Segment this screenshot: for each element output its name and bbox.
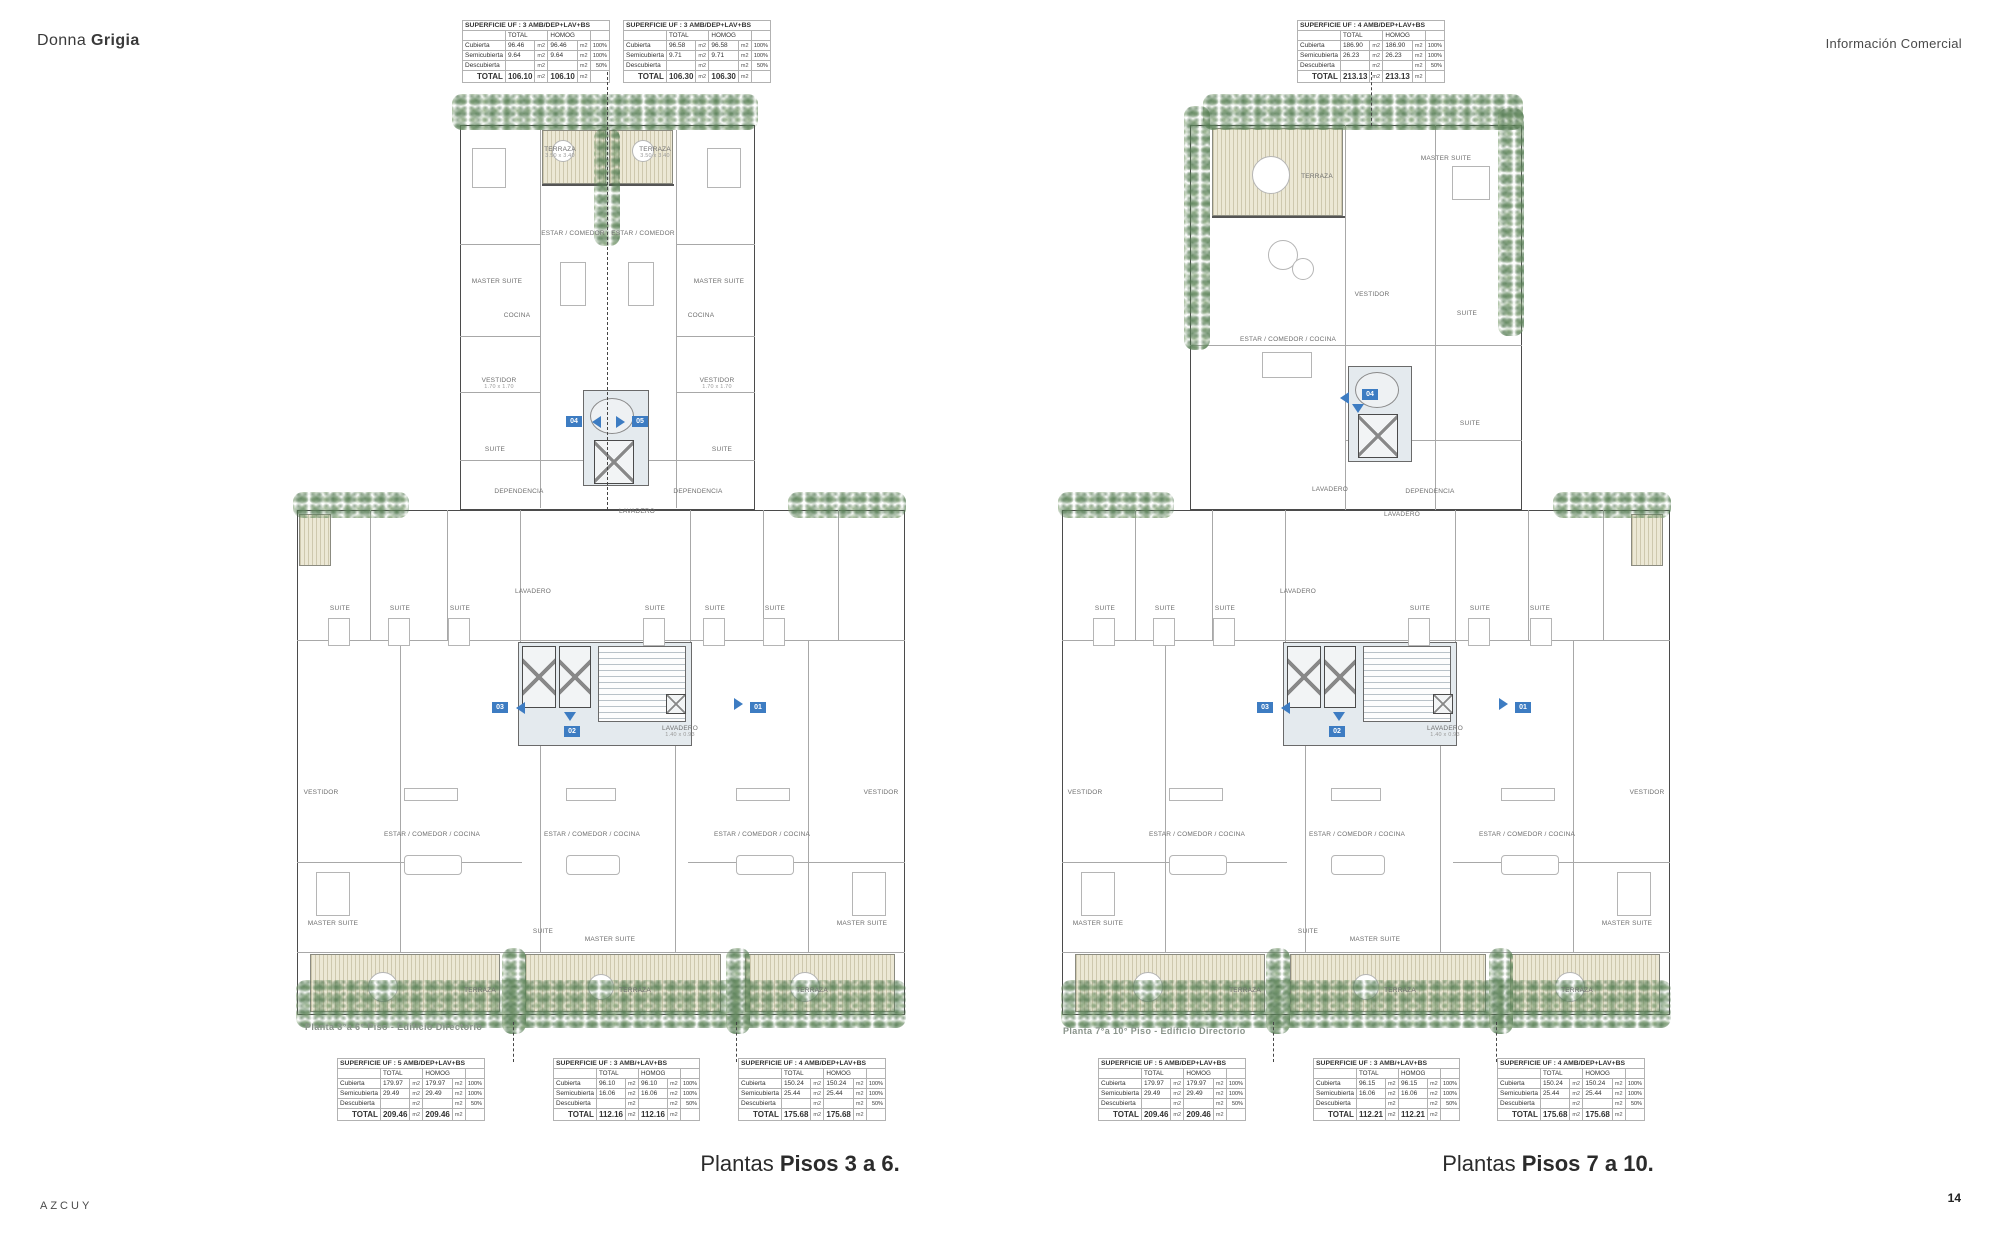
wall-line [1528,510,1529,640]
total-label: TOTAL [1099,1109,1142,1121]
wall-line [676,130,677,508]
room-label: ESTAR / COMEDOR / COCINA [1309,831,1405,838]
pct-value: 100% [866,1079,885,1089]
pct-value: 100% [866,1089,885,1099]
grand-total-homog: 209.46 [423,1109,452,1121]
furniture-bed [1617,872,1651,916]
axis-dashed-line [513,1022,514,1062]
planting-band [1498,108,1524,336]
wall-line [1135,510,1136,640]
pct-value: 100% [1625,1089,1644,1099]
room-label: SUITE [450,605,470,612]
furniture-kitchen-island [404,788,458,801]
homog-value: 96.10 [638,1079,667,1089]
furniture-bed [707,148,741,188]
room-label: SUITE [330,605,350,612]
row-label: Descubierta [1498,1099,1541,1109]
arrow-down-icon [1352,404,1364,413]
wall-line [1435,345,1436,510]
row-label: Descubierta [739,1099,782,1109]
pct-value: 50% [465,1099,484,1109]
col-header-homog: HOMOG [1383,31,1425,41]
superficie-table-bottom-right-3: SUPERFICIE UF : 4 AMB/DEP+LAV+BSTOTALHOM… [1497,1058,1645,1121]
row-label: Semicubierta [1099,1089,1142,1099]
furniture-bed [763,618,785,646]
total-value: 9.64 [505,51,534,61]
pct-value: 100% [1425,51,1444,61]
planting-band [788,492,906,518]
row-label: Semicubierta [624,51,667,61]
planting-band [1553,492,1671,518]
total-value [666,61,695,71]
homog-value [548,61,577,71]
total-value: 150.24 [781,1079,810,1089]
furniture-kitchen-island [736,788,790,801]
room-label: LAVADERO [619,508,655,515]
pct-value: 100% [590,41,609,51]
furniture-sofa [1501,855,1559,875]
grand-total-homog: 213.13 [1383,71,1412,83]
furniture-dining-table [1262,352,1312,378]
room-label: SUITE [705,605,725,612]
row-label: Semicubierta [739,1089,782,1099]
room-label: MASTER SUITE [1602,920,1652,927]
wall-line [676,244,755,245]
total-label: TOTAL [1298,71,1341,83]
grand-total: 112.16 [596,1109,625,1121]
room-label: TERRAZA [464,987,496,994]
wall-line [540,130,541,508]
pct-value: 50% [590,61,609,71]
col-header-total: TOTAL [596,1069,638,1079]
total-label: TOTAL [1314,1109,1357,1121]
row-label: Descubierta [1099,1099,1142,1109]
header-right-label: Información Comercial [1826,36,1962,51]
homog-value [638,1099,667,1109]
furniture-dining-table [628,262,654,306]
room-label: MASTER SUITE [585,936,635,943]
arrow-right-icon [1499,698,1508,710]
col-header-homog: HOMOG [824,1069,866,1079]
row-label: Semicubierta [1298,51,1341,61]
row-label: Semicubierta [338,1089,381,1099]
superficie-table: SUPERFICIE UF : 5 AMB/DEP+LAV+BSTOTALHOM… [1098,1058,1246,1121]
room-label: LAVADERO [1312,486,1348,493]
furniture-table [1292,258,1314,280]
table-title: SUPERFICIE UF : 4 AMB/DEP+LAV+BS [1498,1059,1645,1069]
room-label: SUITE [1460,420,1480,427]
brand-title: Donna Grigia [37,32,140,50]
planting-band [726,948,750,1034]
total-value: 150.24 [1540,1079,1569,1089]
grand-total: 209.46 [380,1109,409,1121]
room-label: DEPENDENCIA [494,488,543,495]
unit-marker: 02 [1329,726,1345,737]
col-header-total: TOTAL [380,1069,422,1079]
service-shaft [666,694,686,714]
pct-value: 100% [465,1089,484,1099]
total-value: 29.49 [1141,1089,1170,1099]
wall-line [540,745,541,952]
room-label: VESTIDOR [1068,789,1103,796]
wall-line [460,244,540,245]
total-value: 96.46 [505,41,534,51]
homog-value: 96.46 [548,41,577,51]
pct-value: 100% [1441,1089,1460,1099]
room-label: LAVADERO [1280,588,1316,595]
elevator-shaft [522,646,556,708]
homog-value [1383,61,1412,71]
homog-value: 26.23 [1383,51,1412,61]
row-label: Descubierta [1314,1099,1357,1109]
room-label: SUITE [1298,928,1318,935]
furniture-sofa [404,855,462,875]
superficie-table-bottom-left-3: SUPERFICIE UF : 4 AMB/DEP+LAV+BSTOTALHOM… [738,1058,886,1121]
room-label: VESTIDOR [304,789,339,796]
grand-total: 112.21 [1356,1109,1385,1121]
furniture-sofa [1331,855,1385,875]
planting-band [502,948,526,1034]
furniture-kitchen-island [1331,788,1381,801]
room-label: TERRAZA3.50 x 3.40 [639,146,671,159]
homog-value: 186.90 [1383,41,1412,51]
row-label: Cubierta [739,1079,782,1089]
total-value [781,1099,810,1109]
table-title: SUPERFICIE UF : 3 AMB/DEP+LAV+BS [624,21,771,31]
room-label: ESTAR / COMEDOR / COCINA [1479,831,1575,838]
room-label: TERRAZA [796,987,828,994]
total-value: 16.06 [596,1089,625,1099]
superficie-table: SUPERFICIE UF : 5 AMB/DEP+LAV+BSTOTALHOM… [337,1058,485,1121]
table-title: SUPERFICIE UF : 4 AMB/DEP+LAV+BS [739,1059,886,1069]
wall-line [676,336,755,337]
wall-line [370,510,371,640]
unit-marker: 04 [566,416,582,427]
planting-band [1058,492,1174,518]
table-title: SUPERFICIE UF : 5 AMB/DEP+LAV+BS [338,1059,485,1069]
table-title: SUPERFICIE UF : 3 AMB/+LAV+BS [554,1059,700,1069]
room-label: TERRAZA3.50 x 3.40 [544,146,576,159]
pct-value: 100% [681,1089,700,1099]
unit-marker: 03 [492,702,508,713]
room-label: DEPENDENCIA [673,488,722,495]
row-label: Cubierta [554,1079,597,1089]
col-header-total: TOTAL [1340,31,1382,41]
room-label: SUITE [533,928,553,935]
wall-line [1062,952,1670,953]
plan-sheet-label: Planta 7°a 10° Piso - Edificio Directori… [1063,1026,1246,1036]
room-label: MASTER SUITE [694,278,744,285]
planting-band [1184,106,1210,350]
grand-total-homog: 175.68 [1583,1109,1612,1121]
homog-value: 16.06 [1398,1089,1427,1099]
room-label: COCINA [504,312,530,319]
total-value [1340,61,1369,71]
total-value: 9.71 [666,51,695,61]
superficie-table-top-left-2: SUPERFICIE UF : 3 AMB/DEP+LAV+BSTOTALHOM… [623,20,771,83]
row-label: Descubierta [624,61,667,71]
row-label: Cubierta [1099,1079,1142,1089]
room-label: ESTAR / COMEDOR / COCINA [1240,336,1336,343]
homog-value: 150.24 [1583,1079,1612,1089]
grand-total-homog: 175.68 [824,1109,853,1121]
pct-value: 100% [1441,1079,1460,1089]
superficie-table: SUPERFICIE UF : 3 AMB/DEP+LAV+BSTOTALHOM… [462,20,610,83]
row-label: Descubierta [338,1099,381,1109]
total-value: 96.58 [666,41,695,51]
table-title: SUPERFICIE UF : 5 AMB/DEP+LAV+BS [1099,1059,1246,1069]
room-label: LAVADERO1.40 x 0.93 [1427,725,1463,738]
wall-line [838,510,839,640]
row-label: Semicubierta [463,51,506,61]
pct-value: 50% [1425,61,1444,71]
elevator-shaft [1287,646,1321,708]
elevator-shaft [1358,414,1398,458]
axis-dashed-line [1273,1022,1274,1062]
grand-total-homog: 106.10 [548,71,577,83]
pct-value: 100% [681,1079,700,1089]
total-value: 96.10 [596,1079,625,1089]
unit-marker: 02 [564,726,580,737]
wall-line [460,336,540,337]
wall-line [1573,640,1574,952]
col-header-total: TOTAL [1141,1069,1183,1079]
room-label: MASTER SUITE [1421,155,1471,162]
superficie-table: SUPERFICIE UF : 3 AMB/+LAV+BSTOTALHOMOGC… [1313,1058,1460,1121]
room-label: MASTER SUITE [1350,936,1400,943]
grand-total: 213.13 [1340,71,1369,83]
total-value: 96.15 [1356,1079,1385,1089]
row-label: Cubierta [338,1079,381,1089]
col-header-homog: HOMOG [1184,1069,1226,1079]
furniture-bed [1452,166,1490,200]
wall-line [1345,125,1346,510]
superficie-table-bottom-left-2: SUPERFICIE UF : 3 AMB/+LAV+BSTOTALHOMOGC… [553,1058,700,1121]
total-value: 29.49 [380,1089,409,1099]
table-title: SUPERFICIE UF : 4 AMB/DEP+LAV+BS [1298,21,1445,31]
furniture-sofa [1169,855,1227,875]
room-label: MASTER SUITE [1073,920,1123,927]
room-label: ESTAR / COMEDOR / COCINA [1149,831,1245,838]
row-label: Descubierta [463,61,506,71]
homog-value [1398,1099,1427,1109]
room-label: LAVADERO1.40 x 0.93 [662,725,698,738]
homog-value: 96.15 [1398,1079,1427,1089]
total-value: 25.44 [781,1089,810,1099]
col-header-homog: HOMOG [1398,1069,1440,1079]
total-value: 16.06 [1356,1089,1385,1099]
room-label: ESTAR / COMEDOR / COCINA [544,831,640,838]
room-label: VESTIDOR1.70 x 1.70 [700,377,735,390]
total-value [1540,1099,1569,1109]
col-header-total: TOTAL [666,31,708,41]
col-header-homog: HOMOG [423,1069,465,1079]
total-value [596,1099,625,1109]
arrow-left-icon [592,416,601,428]
furniture-bed [1213,618,1235,646]
room-label: VESTIDOR [1355,291,1390,298]
room-label: SUITE [1470,605,1490,612]
room-label: TERRAZA [1384,987,1416,994]
furniture-sofa [566,855,620,875]
room-label: VESTIDOR1.70 x 1.70 [482,377,517,390]
row-label: Semicubierta [554,1089,597,1099]
col-header-homog: HOMOG [1583,1069,1625,1079]
total-label: TOTAL [624,71,667,83]
wall-line [297,952,905,953]
total-value [1356,1099,1385,1109]
pct-value: 100% [465,1079,484,1089]
homog-value: 29.49 [423,1089,452,1099]
wall-line [460,392,540,393]
homog-value [1583,1099,1612,1109]
grand-total-homog: 209.46 [1184,1109,1213,1121]
room-label: SUITE [1215,605,1235,612]
arrow-left-icon [1281,702,1290,714]
furniture-bed [1093,618,1115,646]
planting-band [452,94,758,130]
col-header-homog: HOMOG [709,31,751,41]
elevator-shaft [594,440,634,484]
arrow-right-icon [734,698,743,710]
col-header-homog: HOMOG [638,1069,680,1079]
furniture-bed [316,872,350,916]
superficie-table: SUPERFICIE UF : 4 AMB/DEP+LAV+BSTOTALHOM… [738,1058,886,1121]
homog-value [709,61,738,71]
grand-total: 106.30 [666,71,695,83]
service-shaft [1433,694,1453,714]
total-value: 25.44 [1540,1089,1569,1099]
wall-line [1603,510,1604,640]
grand-total-homog: 106.30 [709,71,738,83]
grand-total: 209.46 [1141,1109,1170,1121]
row-label: Semicubierta [1498,1089,1541,1099]
room-label: ESTAR / COMEDOR / COCINA [384,831,480,838]
total-label: TOTAL [1498,1109,1541,1121]
homog-value: 16.06 [638,1089,667,1099]
furniture-bed [852,872,886,916]
wall-line [1440,745,1441,952]
room-label: SUITE [1457,310,1477,317]
homog-value: 96.58 [709,41,738,51]
planting-band [1266,948,1290,1034]
furniture-bed [1153,618,1175,646]
furniture-kitchen-island [1169,788,1223,801]
col-header-total: TOTAL [1356,1069,1398,1079]
row-label: Cubierta [1314,1079,1357,1089]
row-label: Cubierta [463,41,506,51]
grand-total: 175.68 [781,1109,810,1121]
pct-value: 100% [751,41,770,51]
wall-line [400,640,401,952]
terrace-hatch [1631,514,1663,566]
room-label: ESTAR / COMEDOR [611,230,675,237]
axis-dashed-line [1371,72,1372,126]
homog-value: 179.97 [423,1079,452,1089]
superficie-table: SUPERFICIE UF : 4 AMB/DEP+LAV+BSTOTALHOM… [1497,1058,1645,1121]
room-label: COCINA [688,312,714,319]
pct-value: 50% [1441,1099,1460,1109]
unit-marker: 01 [1515,702,1531,713]
row-label: Semicubierta [1314,1089,1357,1099]
arrow-right-icon [616,416,625,428]
room-label: MASTER SUITE [308,920,358,927]
furniture-bed [388,618,410,646]
pct-value: 50% [1625,1099,1644,1109]
room-label: VESTIDOR [864,789,899,796]
axis-dashed-line [1496,1022,1497,1062]
total-label: TOTAL [554,1109,597,1121]
plan-sheet-label: Planta 3°a 6° Piso - Edificio Directorio [305,1022,482,1032]
furniture-bed [328,618,350,646]
room-label: TERRAZA [1229,987,1261,994]
pct-value: 100% [1226,1079,1245,1089]
room-label: TERRAZA [619,987,651,994]
axis-dashed-line [607,72,608,510]
superficie-table: SUPERFICIE UF : 3 AMB/+LAV+BSTOTALHOMOGC… [553,1058,700,1121]
pct-value: 50% [681,1099,700,1109]
homog-value: 150.24 [824,1079,853,1089]
total-value: 186.90 [1340,41,1369,51]
arrow-down-icon [1333,712,1345,721]
superficie-table-bottom-right-2: SUPERFICIE UF : 3 AMB/+LAV+BSTOTALHOMOGC… [1313,1058,1460,1121]
room-label: SUITE [1095,605,1115,612]
row-label: Descubierta [1298,61,1341,71]
table-title: SUPERFICIE UF : 3 AMB/+LAV+BS [1314,1059,1460,1069]
planting-band [293,492,409,518]
room-label: SUITE [485,446,505,453]
superficie-table: SUPERFICIE UF : 3 AMB/DEP+LAV+BSTOTALHOM… [623,20,771,83]
total-label: TOTAL [338,1109,381,1121]
room-label: VESTIDOR [1630,789,1665,796]
brochure-page: { "header": { "brand_regular": "Donna", … [0,0,2000,1250]
room-label: TERRAZA [1561,987,1593,994]
elevator-shaft [1324,646,1356,708]
wall-line [1190,345,1522,346]
room-label: DEPENDENCIA [1405,488,1454,495]
room-label: LAVADERO [1384,511,1420,518]
planting-band [1203,94,1523,130]
homog-value: 9.71 [709,51,738,61]
homog-value: 179.97 [1184,1079,1213,1089]
room-label: SUITE [1410,605,1430,612]
axis-dashed-line [736,1022,737,1062]
col-header-homog: HOMOG [548,31,590,41]
grand-total-homog: 112.21 [1398,1109,1427,1121]
superficie-table-bottom-right-1: SUPERFICIE UF : 5 AMB/DEP+LAV+BSTOTALHOM… [1098,1058,1246,1121]
caption-left-plan: Plantas Pisos 3 a 6. [700,1151,899,1177]
superficie-table-bottom-left-1: SUPERFICIE UF : 5 AMB/DEP+LAV+BSTOTALHOM… [337,1058,485,1121]
wall-line [1305,745,1306,952]
room-label: SUITE [645,605,665,612]
room-label: ESTAR / COMEDOR [541,230,605,237]
room-label: MASTER SUITE [837,920,887,927]
room-label: TERRAZA [1301,173,1333,180]
arrow-down-icon [564,712,576,721]
footer-brand: AZCUY [40,1200,92,1212]
row-label: Descubierta [554,1099,597,1109]
room-label: SUITE [1530,605,1550,612]
pct-value: 100% [1625,1079,1644,1089]
terrace-hatch [299,514,331,566]
room-label: SUITE [712,446,732,453]
total-value: 179.97 [1141,1079,1170,1089]
unit-marker: 05 [632,416,648,427]
homog-value [824,1099,853,1109]
furniture-bed [643,618,665,646]
pct-value: 100% [590,51,609,61]
wall-line [1453,862,1670,863]
